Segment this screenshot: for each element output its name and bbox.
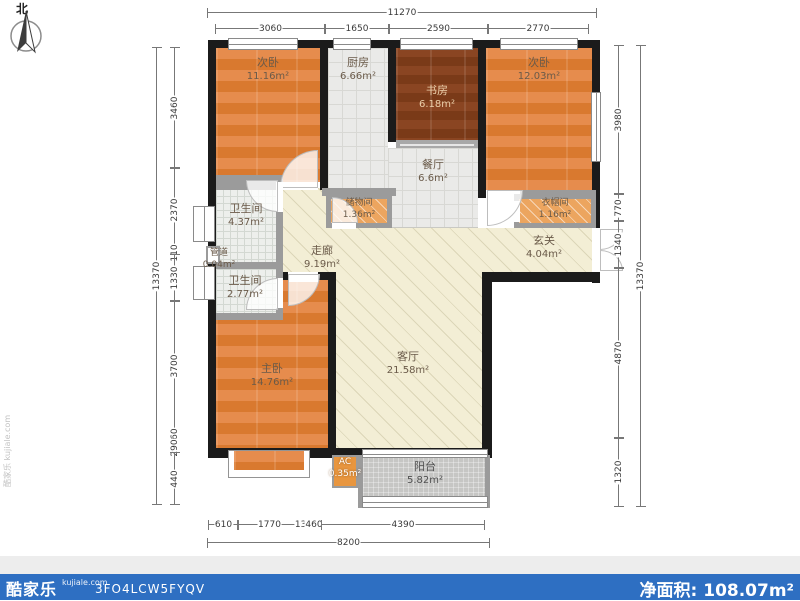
- dim-bottom-total: 8200: [207, 538, 490, 548]
- room-study-floor: [396, 48, 478, 140]
- dim-label: 3700: [170, 354, 180, 379]
- dim-right-seg-0: 3980: [614, 45, 624, 195]
- bay-window-master: [228, 450, 310, 478]
- dim-label: 770: [614, 198, 624, 217]
- wall-entry-bottom: [482, 272, 600, 282]
- window-study: [400, 38, 473, 50]
- dim-label: 610: [214, 520, 233, 530]
- dim-right-seg-4: 1320: [614, 437, 624, 507]
- window-kitchen: [333, 38, 371, 50]
- pipe-duct-box: [206, 246, 220, 264]
- dim-label: 1320: [614, 460, 624, 485]
- footer-strip: [0, 556, 800, 574]
- dim-left-seg-3: 1330: [170, 254, 180, 302]
- room-dining-floor: [388, 148, 478, 228]
- dim-right-total: 13370: [636, 45, 646, 507]
- dim-bottom-seg-4: 4390: [321, 520, 485, 530]
- dim-top-seg-0: 3060: [215, 24, 326, 34]
- dim-bottom-seg-1: 1770: [237, 520, 302, 530]
- window-bathroom-1: [193, 206, 215, 242]
- dim-label: 13370: [636, 261, 646, 292]
- dim-left-seg-1: 2370: [170, 167, 180, 252]
- plan-code: 3FO4LCW5FYQV: [95, 582, 205, 596]
- dim-right-seg-3: 4870: [614, 267, 624, 439]
- dim-bottom-seg-0: 610: [208, 520, 239, 530]
- dim-label: 440: [170, 469, 180, 488]
- net-area: 净面积: 108.07m²: [640, 576, 795, 601]
- wall-living-right: [482, 272, 492, 458]
- dim-left-total: 13370: [152, 47, 162, 505]
- dim-label: 1330: [170, 266, 180, 291]
- window-bedroom-right-east: [591, 92, 601, 162]
- dim-label: 11270: [387, 8, 418, 18]
- dim-label: 3060: [258, 24, 283, 34]
- dim-top-seg-1: 1650: [324, 24, 390, 34]
- dim-label: 8200: [336, 538, 361, 548]
- dim-label: 1340: [614, 232, 624, 257]
- dim-label: 2370: [170, 197, 180, 222]
- window-living-balcony: [362, 449, 488, 458]
- net-area-value: 108.07m²: [703, 581, 794, 601]
- footer-bar: 酷家乐 kujiale.com 3FO4LCW5FYQV 净面积: 108.07…: [0, 574, 800, 600]
- side-watermark: 酷家乐 kujiale.com: [2, 415, 13, 487]
- floorplan-canvas: 北: [0, 0, 800, 600]
- wall-bedroom-left-right: [320, 48, 328, 190]
- wall-bath-bottom: [216, 313, 283, 320]
- bay-window-floor: [234, 451, 304, 470]
- dim-label: 3460: [170, 96, 180, 121]
- dim-label: 4870: [614, 341, 624, 366]
- window-bedroom-right: [500, 38, 578, 50]
- dim-top-seg-3: 2770: [487, 24, 589, 34]
- dim-right-seg-2: 1340: [614, 220, 624, 269]
- entrance-gap: [592, 228, 600, 272]
- window-balcony: [362, 496, 488, 508]
- dim-label: 2770: [526, 24, 551, 34]
- kujiale-logo: 酷家乐: [6, 576, 57, 600]
- dim-label: 2590: [426, 24, 451, 34]
- wall-study-bedroom-right: [478, 48, 486, 198]
- dim-label: 13370: [152, 261, 162, 292]
- wall-bath-divider: [216, 262, 283, 269]
- dim-label: 4390: [391, 520, 416, 530]
- window-bathroom-2: [193, 266, 215, 300]
- dim-left-seg-0: 3460: [170, 47, 180, 169]
- room-kitchen-floor: [328, 48, 388, 188]
- room-cloakroom-floor: [514, 194, 596, 228]
- net-area-label: 净面积:: [640, 581, 698, 601]
- wall-master-living: [328, 272, 336, 448]
- dim-top-seg-2: 2590: [388, 24, 489, 34]
- window-bedroom-left: [228, 38, 298, 50]
- storage-door-gap: [332, 223, 356, 229]
- dim-label: 1650: [345, 24, 370, 34]
- dim-right-seg-1: 770: [614, 193, 624, 222]
- north-arrow-icon: [4, 8, 48, 58]
- wall-kitchen-study: [388, 48, 396, 142]
- dim-left-seg-7: 440: [170, 452, 180, 505]
- dim-label: 3980: [614, 108, 624, 133]
- dim-label: 1770: [257, 520, 282, 530]
- dim-top-total: 11270: [207, 8, 597, 18]
- room-bedroom-right-floor: [486, 48, 592, 190]
- study-sliding-door: [396, 140, 478, 148]
- dim-left-seg-4: 3700: [170, 300, 180, 432]
- ac-platform: [332, 455, 358, 488]
